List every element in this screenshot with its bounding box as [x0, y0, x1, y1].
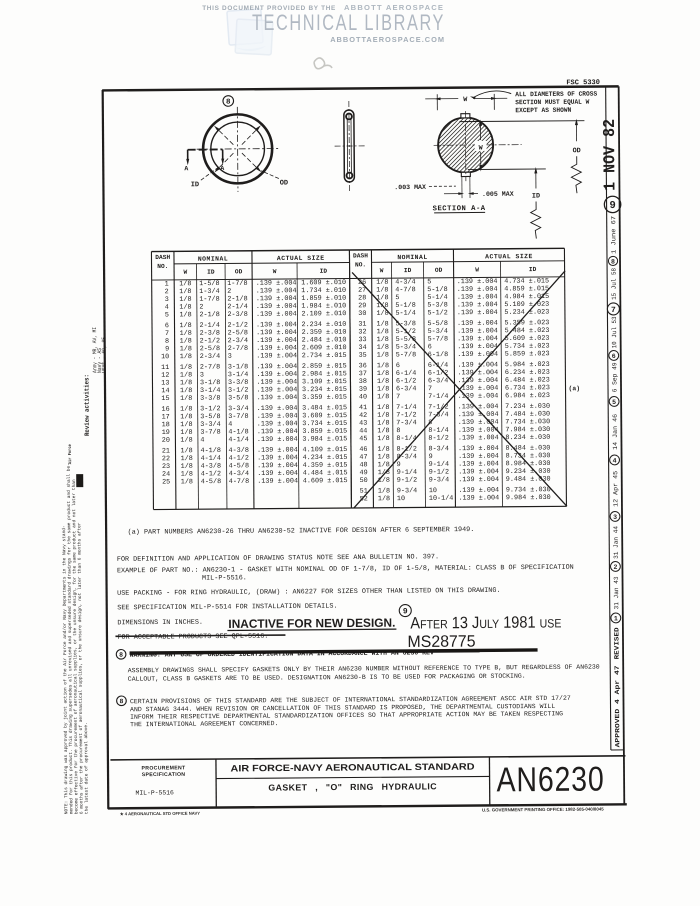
svg-text:.139 ±.004: .139 ±.004	[458, 494, 499, 502]
svg-text:.139 ±.004: .139 ±.004	[458, 476, 499, 484]
svg-text:6: 6	[612, 353, 616, 360]
svg-text:U.S. GOVERNMENT PRINTING OFFIC: U.S. GOVERNMENT PRINTING OFFICE: 1982-50…	[482, 807, 604, 813]
svg-text:the latest date of approval ab: the latest date of approval above.	[83, 722, 90, 814]
svg-text:7: 7	[611, 306, 616, 315]
svg-text:MS28775: MS28775	[407, 633, 475, 652]
svg-text:Air Force: Air Force	[68, 444, 73, 464]
svg-text:1/8: 1/8	[180, 395, 192, 403]
svg-text:15 Jul 58: 15 Jul 58	[611, 268, 618, 300]
svg-text:1 June 67: 1 June 67	[610, 216, 617, 254]
svg-text:ID: ID	[191, 181, 199, 189]
svg-text:50: 50	[360, 477, 368, 485]
svg-text:1/8: 1/8	[179, 311, 191, 319]
svg-text:After 13 July 1981 use: After 13 July 1981 use	[410, 613, 561, 632]
svg-text:(a): (a)	[568, 385, 580, 392]
svg-text:REVISED: REVISED	[613, 627, 620, 659]
svg-text:7: 7	[396, 393, 400, 401]
svg-text:5-1/4: 5-1/4	[395, 310, 415, 318]
svg-text:.139 ±.004: .139 ±.004	[457, 309, 498, 317]
svg-text:.139 ±.004: .139 ±.004	[257, 436, 298, 444]
svg-text:OD: OD	[573, 147, 581, 155]
svg-text:10 Jul 53: 10 Jul 53	[611, 316, 618, 348]
svg-text:4.609 ±.015: 4.609 ±.015	[303, 477, 348, 485]
svg-text:15: 15	[161, 395, 169, 403]
svg-text:MIL-P-5516: MIL-P-5516	[135, 789, 174, 796]
svg-text:AIR FORCE-NAVY AERONAUTICAL ST: AIR FORCE-NAVY AERONAUTICAL STANDARD	[230, 762, 474, 774]
svg-text:SECTION MUST EQUAL W: SECTION MUST EQUAL W	[515, 99, 589, 107]
svg-text:9: 9	[609, 200, 615, 212]
svg-text:3.984 ±.015: 3.984 ±.015	[302, 435, 347, 443]
svg-text:25: 25	[162, 478, 170, 486]
svg-text:.139 ±.004: .139 ±.004	[257, 394, 298, 402]
svg-text:A: A	[220, 165, 224, 172]
svg-text:3: 3	[613, 514, 617, 521]
svg-text:5-1/2: 5-1/2	[427, 309, 447, 317]
svg-text:ID: ID	[532, 192, 540, 200]
svg-text:.005 MAX: .005 MAX	[482, 191, 514, 198]
svg-text:9-3/4: 9-3/4	[429, 476, 449, 484]
svg-text:12 Apr 45: 12 Apr 45	[612, 471, 619, 507]
svg-text:3-3/8: 3-3/8	[200, 395, 220, 403]
svg-text:.139 ±.004: .139 ±.004	[256, 310, 297, 318]
svg-text:ALL DIAMETERS OF CROSS: ALL DIAMETERS OF CROSS	[515, 91, 597, 99]
svg-text:1/8: 1/8	[377, 435, 389, 443]
svg-text:.003 MAX: .003 MAX	[394, 184, 426, 191]
svg-text:APPROVED 4 Apr 47: APPROVED 4 Apr 47	[614, 665, 622, 747]
svg-text:A: A	[184, 165, 188, 172]
svg-text:10-1/4: 10-1/4	[429, 495, 454, 503]
svg-text:Review activities:: Review activities:	[83, 374, 90, 436]
svg-text:5: 5	[165, 311, 169, 319]
svg-text:OD: OD	[280, 179, 288, 187]
svg-text:.139 ±.004: .139 ±.004	[458, 434, 499, 442]
svg-text:ID: ID	[320, 268, 328, 275]
svg-text:DASH: DASH	[155, 254, 170, 261]
svg-text:4: 4	[200, 436, 204, 444]
svg-text:2-3/4: 2-3/4	[200, 353, 220, 361]
svg-text:10: 10	[397, 495, 405, 503]
svg-text:9.484 ±.030: 9.484 ±.030	[506, 476, 551, 484]
svg-text:6 Sep 49: 6 Sep 49	[611, 362, 618, 392]
svg-text:5.234 ±.023: 5.234 ±.023	[504, 309, 549, 317]
svg-text:2-3/8: 2-3/8	[227, 311, 247, 319]
svg-text:31 Jan 43: 31 Jan 43	[613, 576, 620, 609]
svg-text:3.359 ±.015: 3.359 ±.015	[302, 394, 347, 402]
svg-text:8: 8	[226, 99, 231, 107]
svg-text:4-7/8: 4-7/8	[229, 478, 249, 486]
svg-text:2.734 ±.015: 2.734 ±.015	[302, 352, 347, 360]
svg-text:6.984 ±.023: 6.984 ±.023	[505, 392, 550, 400]
svg-text:NOMINAL: NOMINAL	[198, 255, 228, 262]
svg-text:W: W	[273, 268, 277, 275]
svg-text:AN6230: AN6230	[496, 761, 604, 800]
svg-text:ACTUAL SIZE: ACTUAL SIZE	[277, 255, 325, 262]
svg-text:W: W	[380, 267, 384, 274]
svg-text:MIL-P-5516.: MIL-P-5516.	[202, 574, 247, 582]
svg-text:1/8: 1/8	[180, 353, 192, 361]
svg-text:.139 ±.004: .139 ±.004	[257, 477, 298, 485]
svg-text:31 Jan 44: 31 Jan 44	[613, 526, 620, 559]
svg-text:20: 20	[162, 437, 170, 445]
svg-text:NO.: NO.	[157, 263, 168, 270]
svg-text:8: 8	[119, 698, 123, 705]
svg-text:1/8: 1/8	[378, 495, 390, 503]
svg-text:DASH: DASH	[353, 252, 368, 259]
svg-text:10: 10	[161, 353, 169, 361]
svg-text:1 NOV 82: 1 NOV 82	[600, 119, 620, 191]
svg-text:OD: OD	[435, 267, 443, 274]
svg-text:14 Jan 46: 14 Jan 46	[612, 414, 619, 450]
svg-text:1/8: 1/8	[181, 478, 193, 486]
svg-text:8: 8	[611, 258, 615, 265]
svg-text:1/8: 1/8	[377, 352, 389, 360]
svg-text:.139 ±.004: .139 ±.004	[256, 352, 297, 360]
svg-text:W: W	[183, 269, 187, 276]
svg-text:4: 4	[613, 457, 617, 464]
svg-text:GASKET , "O" RING HYDRAULI: GASKET , "O" RING HYDRAULIC	[268, 781, 437, 792]
svg-text:EXCEPT AS SHOWN: EXCEPT AS SHOWN	[515, 107, 571, 114]
svg-text:1/8: 1/8	[378, 477, 390, 485]
svg-text:ACTUAL SIZE: ACTUAL SIZE	[485, 253, 533, 260]
svg-text:3: 3	[228, 353, 232, 361]
svg-text:ID: ID	[529, 266, 537, 273]
svg-text:8: 8	[119, 652, 123, 659]
svg-text:ID: ID	[404, 267, 412, 274]
svg-text:ABBOTTAEROSPACE.COM: ABBOTTAEROSPACE.COM	[330, 35, 445, 44]
svg-text:40: 40	[359, 393, 367, 401]
svg-text:35: 35	[359, 352, 367, 360]
svg-text:5-7/8: 5-7/8	[396, 351, 416, 359]
svg-text:OD: OD	[235, 268, 243, 275]
svg-text:4-1/4: 4-1/4	[228, 436, 248, 444]
svg-text:1/8: 1/8	[180, 437, 192, 445]
svg-text:45: 45	[359, 435, 367, 443]
svg-text:30: 30	[358, 310, 366, 318]
svg-text:4-5/8: 4-5/8	[201, 478, 221, 486]
svg-text:THE INTERNATIONAL AGREEMENT CO: THE INTERNATIONAL AGREEMENT CONCERNED.	[130, 720, 278, 728]
svg-text:USAF - 69, 85: USAF - 69, 85	[100, 337, 107, 373]
svg-text:5.859 ±.023: 5.859 ±.023	[505, 350, 550, 358]
svg-text:NOMINAL: NOMINAL	[397, 254, 427, 261]
svg-text:2: 2	[613, 564, 617, 571]
svg-text:5: 5	[612, 399, 616, 406]
svg-text:8.234 ±.030: 8.234 ±.030	[505, 434, 550, 442]
svg-text:7-1/4: 7-1/4	[428, 393, 448, 401]
svg-text:W: W	[475, 266, 479, 273]
svg-text:9-1/2: 9-1/2	[397, 477, 417, 485]
svg-text:.139 ±.004: .139 ±.004	[457, 351, 498, 359]
svg-text:NO.: NO.	[355, 261, 366, 268]
svg-text:DIMENSIONS IN INCHES.: DIMENSIONS IN INCHES.	[117, 619, 203, 628]
svg-text:2-1/8: 2-1/8	[199, 311, 219, 319]
svg-text:FOR ACCEPTABLE PRODUCTS SEE QP: FOR ACCEPTABLE PRODUCTS SEE QPL-5516.	[117, 633, 268, 642]
svg-text:8-1/2: 8-1/2	[428, 435, 448, 443]
svg-text:TECHNICAL LIBRARY: TECHNICAL LIBRARY	[252, 10, 445, 35]
svg-text:SPECIFICATION: SPECIFICATION	[142, 772, 186, 778]
svg-text:2.109 ±.010: 2.109 ±.010	[301, 310, 346, 318]
svg-text:FSC 5330: FSC 5330	[566, 79, 600, 87]
svg-text:ID: ID	[207, 269, 215, 276]
svg-text:9.984 ±.030: 9.984 ±.030	[506, 494, 551, 502]
svg-text:INACTIVE FOR NEW DESIGN.: INACTIVE FOR NEW DESIGN.	[228, 616, 395, 631]
svg-text:PROCUREMENT: PROCUREMENT	[142, 765, 187, 771]
svg-text:3-5/8: 3-5/8	[228, 394, 248, 402]
svg-text:1/8: 1/8	[377, 393, 389, 401]
svg-text:★ 4 AERONAUTICAL STD OFFICE N: ★ 4 AERONAUTICAL STD OFFICE NAVY	[119, 811, 200, 817]
svg-text:9: 9	[403, 607, 408, 616]
svg-text:1: 1	[614, 615, 618, 622]
